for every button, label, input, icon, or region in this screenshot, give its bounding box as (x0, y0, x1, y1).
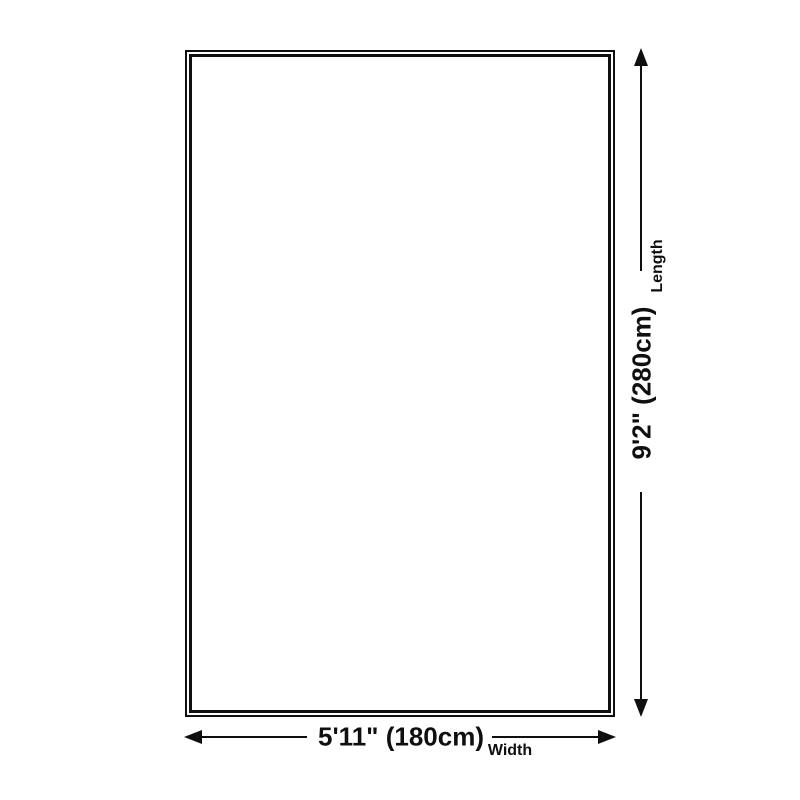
length-label: Length (649, 239, 667, 292)
arrow-down-icon (634, 699, 648, 717)
length-value: 9'2" (280cm) (627, 307, 658, 460)
rug-outline-inner-border (189, 54, 611, 713)
length-line-lower (640, 492, 642, 700)
arrow-right-icon (598, 730, 616, 744)
width-value: 5'11" (180cm) (318, 722, 484, 753)
width-line-left (200, 736, 307, 738)
width-label: Width (488, 742, 532, 760)
rug-dimension-diagram: Length 9'2" (280cm) 5'11" (180cm) Width (0, 0, 800, 800)
rug-outline (185, 50, 615, 717)
length-line-upper (640, 64, 642, 271)
width-line-right (492, 736, 598, 738)
